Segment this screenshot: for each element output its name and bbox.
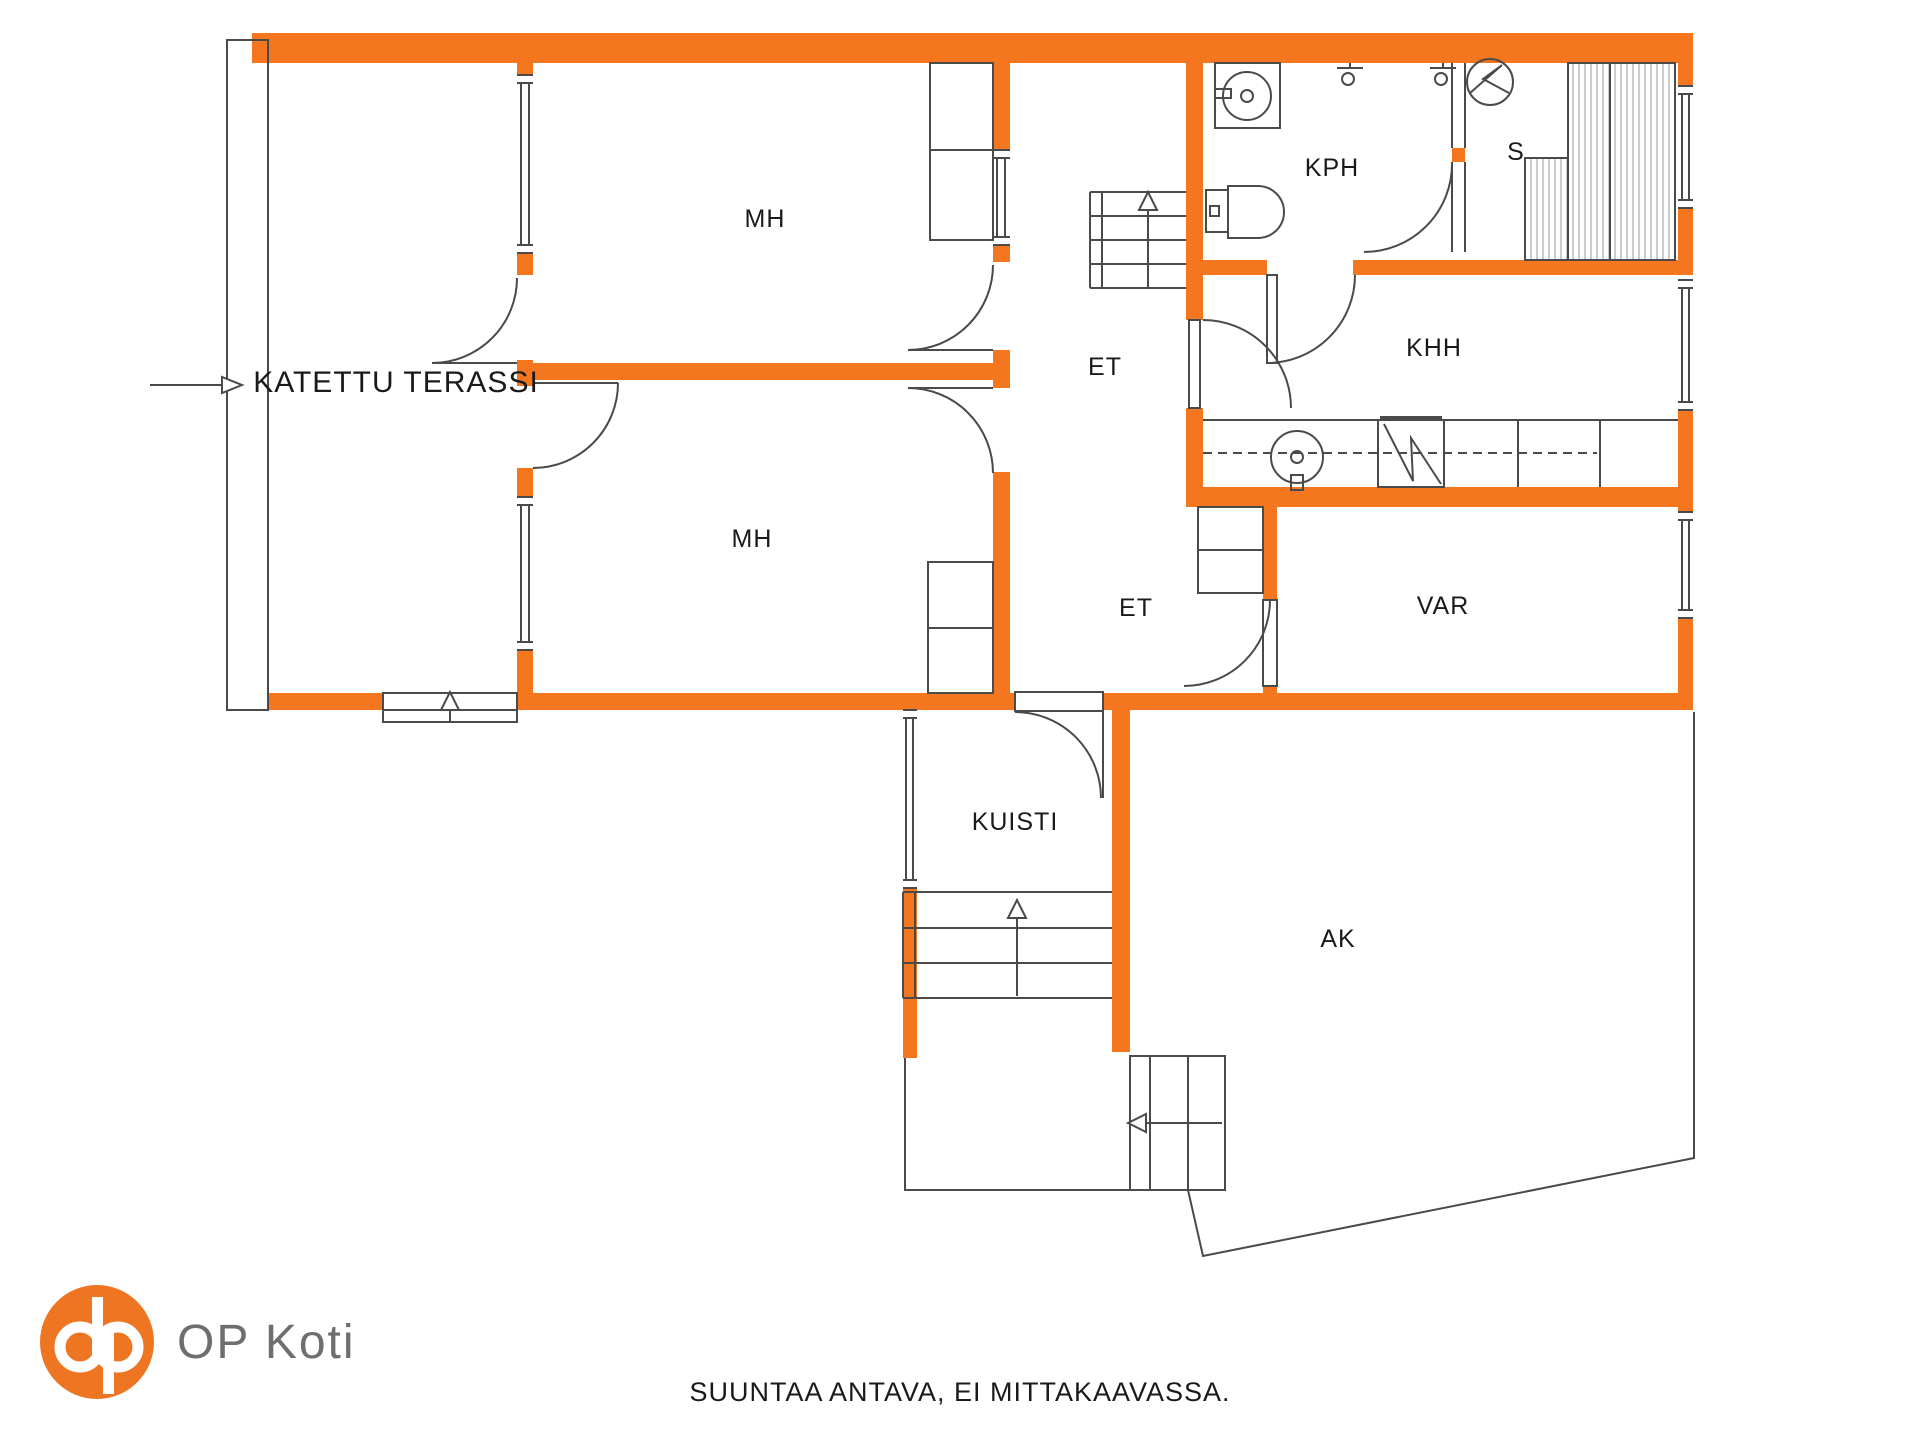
door-mh-bottom [908, 388, 993, 473]
shower-icon [1337, 63, 1363, 85]
door-sauna [1364, 63, 1465, 252]
door-front [1015, 692, 1103, 798]
room-label-katettu-terassi: KATETTU TERASSI [253, 366, 539, 399]
door-mh-top [908, 265, 993, 350]
ak-boundary [1188, 712, 1694, 1256]
sink-icon [1271, 431, 1323, 490]
wall-bottom [517, 693, 1015, 710]
wall-top [252, 33, 1693, 63]
wall-et-mh [993, 245, 1010, 262]
door-terrace [432, 278, 517, 363]
window-var [1678, 512, 1693, 618]
window-khh [1678, 280, 1693, 410]
wall-left [517, 650, 533, 693]
room-label-et-lower: ET [1119, 594, 1153, 622]
window-sauna [1678, 86, 1693, 208]
closet-et-lower [1198, 507, 1263, 593]
wall-et-mh [993, 350, 1010, 388]
closet-mh-top [930, 63, 993, 240]
floor-plan-page: KATETTU TERASSI MH MH ET ET KPH S KHH VA… [0, 0, 1920, 1440]
washing-machine-icon [1215, 63, 1280, 128]
wall-bottom [1103, 693, 1693, 710]
wall-et-mh [993, 472, 1010, 693]
wall-kph-khh [1353, 260, 1693, 275]
room-label-s: S [1507, 138, 1525, 166]
kuisti-deck [905, 1058, 1130, 1190]
room-label-kuisti: KUISTI [972, 808, 1059, 836]
window-terrace-upper [517, 75, 533, 253]
wall-kph-khh [1186, 260, 1267, 275]
wall-var-left [1263, 686, 1277, 693]
room-label-var: VAR [1417, 592, 1470, 620]
toilet-icon [1206, 186, 1284, 238]
room-label-kph: KPH [1305, 154, 1359, 182]
room-label-mh-bottom: MH [732, 525, 773, 553]
closet-mh-bottom [928, 562, 993, 693]
wall-mh-divider [517, 363, 995, 380]
wall-et-kph [1186, 63, 1203, 320]
terrace-step [383, 692, 517, 722]
room-label-mh-top: MH [745, 205, 786, 233]
window-kuisti [903, 710, 917, 888]
wall-terrace-bottom [268, 693, 383, 710]
sauna-stove-icon [1467, 59, 1513, 105]
sauna-bench-icon [1525, 63, 1675, 260]
door-kph-khh [1267, 275, 1355, 363]
wall-kuisti-right [1112, 710, 1130, 1052]
wall-left [517, 63, 533, 75]
door-var [1184, 600, 1277, 686]
stairs-exterior [1128, 1056, 1225, 1190]
stairs-upper-et [1090, 192, 1186, 288]
thin-structures [150, 40, 1694, 1256]
window-terrace-lower [517, 497, 533, 650]
wall-left [517, 253, 533, 275]
room-label-khh: KHH [1406, 334, 1462, 362]
wall-khh-var [1186, 487, 1693, 507]
wall-var-left [1263, 507, 1277, 600]
disclaimer-text: SUUNTAA ANTAVA, EI MITTAKAAVASSA. [689, 1377, 1230, 1407]
wall-et-mh [993, 63, 1010, 150]
window-stairwell [993, 150, 1010, 245]
walls [252, 33, 1693, 1058]
wall-sauna-stub [1452, 148, 1465, 162]
op-koti-logo: OP Koti [40, 1285, 356, 1399]
room-label-ak: AK [1320, 925, 1355, 953]
terrace-entry [150, 377, 242, 393]
khh-counter [1203, 418, 1678, 490]
room-labels: KATETTU TERASSI MH MH ET ET KPH S KHH VA… [253, 138, 1525, 953]
wall-left [517, 468, 533, 497]
floor-plan-canvas: KATETTU TERASSI MH MH ET ET KPH S KHH VA… [0, 0, 1920, 1440]
brand-name: OP Koti [177, 1316, 356, 1369]
stairs-kuisti [903, 892, 1112, 998]
room-label-et-upper: ET [1088, 353, 1122, 381]
wall-right [1678, 63, 1693, 86]
door-mh-bottom-terrace [533, 383, 618, 468]
